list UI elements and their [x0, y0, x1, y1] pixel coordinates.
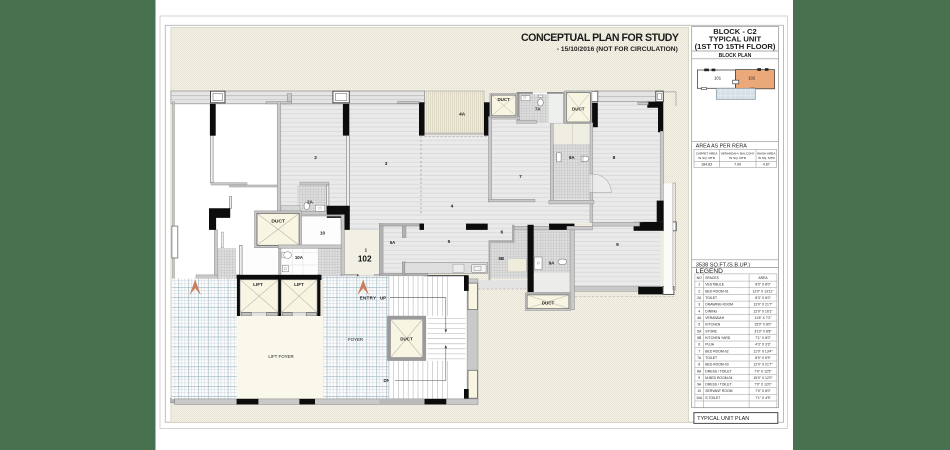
svg-text:7.00: 7.00 — [734, 163, 741, 167]
svg-text:AREA: AREA — [758, 276, 768, 280]
svg-text:4.67: 4.67 — [763, 163, 770, 167]
svg-text:2: 2 — [698, 289, 700, 293]
svg-text:BLOCK PLAN: BLOCK PLAN — [719, 53, 752, 59]
svg-text:5A: 5A — [390, 240, 396, 245]
svg-text:KITCHEN: KITCHEN — [705, 323, 720, 327]
svg-text:7: 7 — [698, 349, 700, 353]
svg-text:LIFT: LIFT — [253, 282, 263, 287]
svg-text:DUCT: DUCT — [400, 336, 413, 341]
svg-text:13'0" X 21'7": 13'0" X 21'7" — [753, 303, 773, 307]
svg-text:BED ROOM-03: BED ROOM-03 — [705, 363, 728, 367]
svg-text:FOYER: FOYER — [348, 337, 363, 342]
svg-text:15'0" X 8'0": 15'0" X 8'0" — [754, 323, 772, 327]
svg-text:VERANDAH: VERANDAH — [705, 316, 724, 320]
svg-text:3'10" X 8'8": 3'10" X 8'8" — [754, 329, 772, 333]
svg-text:STORE: STORE — [705, 329, 717, 333]
svg-text:IN SQ. MTR: IN SQ. MTR — [729, 156, 747, 160]
svg-text:M.BED ROOM-04: M.BED ROOM-04 — [705, 376, 732, 380]
svg-text:DRAWING ROOM: DRAWING ROOM — [705, 303, 733, 307]
svg-text:7: 7 — [519, 174, 522, 180]
svg-text:3: 3 — [385, 161, 388, 167]
svg-text:4: 4 — [698, 309, 700, 313]
svg-text:2A: 2A — [307, 200, 314, 205]
svg-text:(1ST TO 15TH FLOOR): (1ST TO 15TH FLOOR) — [695, 42, 776, 51]
svg-text:PUJA: PUJA — [705, 343, 714, 347]
svg-text:10: 10 — [697, 389, 701, 393]
svg-text:10A: 10A — [696, 396, 703, 400]
svg-text:4A: 4A — [459, 111, 466, 117]
svg-text:8: 8 — [613, 155, 616, 161]
svg-text:DUCT: DUCT — [542, 300, 555, 305]
svg-text:11'6" X 7'2": 11'6" X 7'2" — [754, 316, 772, 320]
svg-text:15'0" X 12'0": 15'0" X 12'0" — [753, 376, 773, 380]
svg-text:IN SQ. MTR: IN SQ. MTR — [698, 156, 716, 160]
svg-text:9A: 9A — [549, 260, 555, 265]
svg-text:5: 5 — [698, 323, 700, 327]
svg-text:NO: NO — [697, 276, 702, 280]
svg-text:8A: 8A — [697, 369, 702, 373]
svg-text:DUCT: DUCT — [572, 106, 585, 111]
svg-text:3: 3 — [698, 303, 700, 307]
svg-text:6: 6 — [500, 230, 503, 236]
svg-text:184.83: 184.83 — [701, 163, 712, 167]
svg-text:8'0" X 5'9": 8'0" X 5'9" — [755, 356, 771, 360]
svg-text:DRESS / TOILET: DRESS / TOILET — [705, 383, 731, 387]
svg-text:9: 9 — [616, 242, 619, 248]
svg-text:2: 2 — [314, 155, 317, 161]
svg-text:4: 4 — [451, 204, 454, 210]
svg-text:TOILET: TOILET — [705, 356, 717, 360]
svg-text:102: 102 — [358, 255, 372, 264]
svg-text:LIFT: LIFT — [294, 282, 304, 287]
svg-text:5B: 5B — [498, 256, 504, 261]
svg-text:DRESS / TOILET: DRESS / TOILET — [705, 369, 731, 373]
svg-text:8'3" X 6'0": 8'3" X 6'0" — [755, 296, 771, 300]
svg-text:5: 5 — [448, 239, 451, 245]
svg-text:LIFT FOYER: LIFT FOYER — [268, 354, 293, 359]
svg-text:101: 101 — [714, 76, 722, 81]
svg-text:BED ROOM-02: BED ROOM-02 — [705, 349, 728, 353]
svg-text:CONCEPTUAL PLAN FOR STUDY: CONCEPTUAL PLAN FOR STUDY — [521, 32, 679, 44]
svg-text:7A: 7A — [535, 106, 541, 111]
svg-text:AREA AS PER RERA: AREA AS PER RERA — [696, 144, 747, 150]
svg-text:SPACES: SPACES — [705, 276, 719, 280]
svg-text:2A: 2A — [697, 296, 702, 300]
svg-text:DUCT: DUCT — [497, 97, 510, 102]
svg-text:UP: UP — [380, 295, 386, 300]
svg-text:6: 6 — [698, 343, 700, 347]
svg-text:7'0" X 12'0": 7'0" X 12'0" — [754, 383, 772, 387]
svg-text:5B: 5B — [697, 336, 702, 340]
svg-text:8: 8 — [698, 363, 700, 367]
svg-text:TOILET: TOILET — [705, 296, 717, 300]
svg-text:8'0" X 8'0": 8'0" X 8'0" — [755, 283, 771, 287]
svg-text:7'1" X 8'0": 7'1" X 8'0" — [755, 336, 771, 340]
svg-text:9A: 9A — [697, 383, 702, 387]
svg-text:7A: 7A — [697, 356, 702, 360]
svg-text:SERVANT ROOM: SERVANT ROOM — [705, 389, 732, 393]
svg-text:LEGEND: LEGEND — [696, 268, 723, 275]
svg-text:12'0" X 13'11": 12'0" X 13'11" — [753, 289, 775, 293]
svg-text:TYPICAL UNIT PLAN: TYPICAL UNIT PLAN — [697, 416, 749, 422]
svg-text:1: 1 — [698, 283, 700, 287]
svg-text:7'0" X 12'5": 7'0" X 12'5" — [754, 369, 772, 373]
svg-text:7'0" X 8'0": 7'0" X 8'0" — [755, 389, 771, 393]
svg-text:DINING: DINING — [705, 309, 717, 313]
svg-text:4'3" X 3'3": 4'3" X 3'3" — [755, 343, 771, 347]
svg-text:10: 10 — [320, 231, 326, 237]
svg-text:5A: 5A — [697, 329, 702, 333]
svg-text:102: 102 — [748, 75, 756, 80]
svg-text:9: 9 — [698, 376, 700, 380]
svg-text:- 15/10/2016 (NOT FOR CIRCULAT: - 15/10/2016 (NOT FOR CIRCULATION) — [557, 46, 678, 53]
svg-text:8A: 8A — [569, 155, 575, 160]
svg-text:KITCHEN YARD: KITCHEN YARD — [705, 336, 730, 340]
svg-text:VESTIBULE: VESTIBULE — [705, 283, 724, 287]
svg-text:IN SQ. MTR: IN SQ. MTR — [758, 156, 776, 160]
svg-text:10A: 10A — [295, 255, 304, 260]
svg-text:12'0" X 16'1": 12'0" X 16'1" — [753, 309, 773, 313]
svg-text:11'0" X 13'4": 11'0" X 13'4" — [754, 349, 774, 353]
svg-text:12'0" X 21'7": 12'0" X 21'7" — [753, 363, 773, 367]
svg-text:DUCT: DUCT — [271, 218, 285, 224]
svg-text:S.TOILET: S.TOILET — [705, 396, 720, 400]
svg-text:4A: 4A — [697, 316, 702, 320]
svg-text:BED ROOM-01: BED ROOM-01 — [705, 289, 728, 293]
svg-text:ENTRY: ENTRY — [360, 296, 376, 301]
svg-text:7'1" X 4'9": 7'1" X 4'9" — [755, 396, 771, 400]
